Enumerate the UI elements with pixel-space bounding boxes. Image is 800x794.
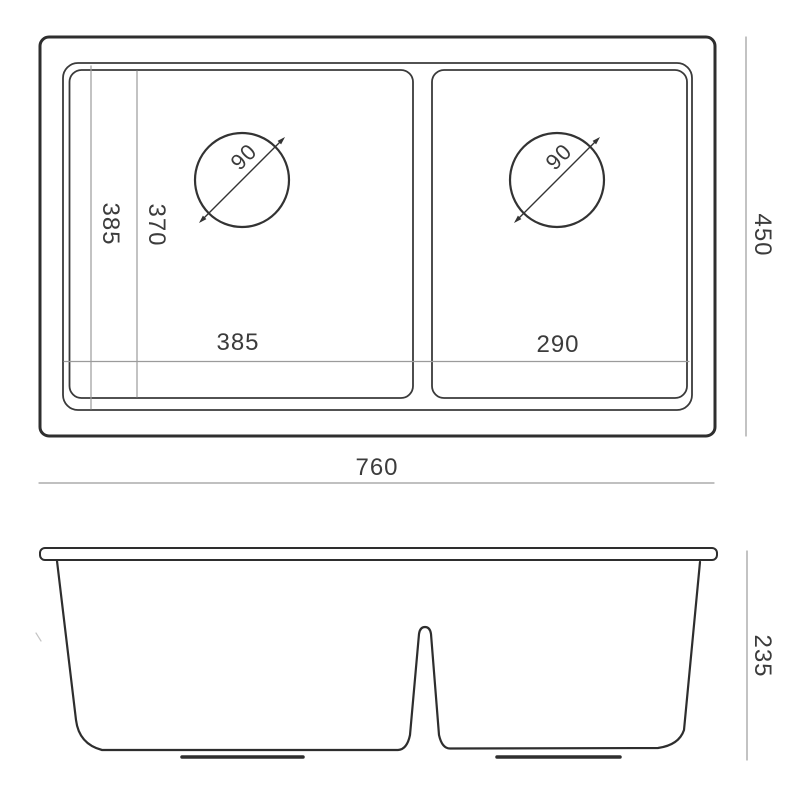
dim-label-right-bowl-width: 290 bbox=[536, 333, 579, 357]
left-stray-tick bbox=[36, 633, 41, 641]
dim-label-rim-depth: 385 bbox=[98, 202, 122, 245]
sink-drawing-linework bbox=[0, 0, 800, 794]
sink-dimension-drawing: 385 370 90 90 385 290 760 450 235 bbox=[0, 0, 800, 794]
sink-front-view bbox=[36, 548, 747, 760]
dim-label-overall-height: 235 bbox=[750, 634, 774, 677]
front-body-outline bbox=[57, 561, 700, 750]
front-rim-plate bbox=[40, 548, 717, 560]
dim-label-overall-depth: 450 bbox=[750, 213, 774, 256]
plan-dimension-lines bbox=[39, 37, 746, 483]
sink-plan-view bbox=[39, 37, 746, 483]
dim-label-bowl-depth: 370 bbox=[144, 203, 168, 246]
dim-label-left-bowl-width: 385 bbox=[216, 331, 259, 355]
dim-label-overall-width: 760 bbox=[355, 456, 398, 480]
plan-outer-edge bbox=[40, 37, 715, 436]
